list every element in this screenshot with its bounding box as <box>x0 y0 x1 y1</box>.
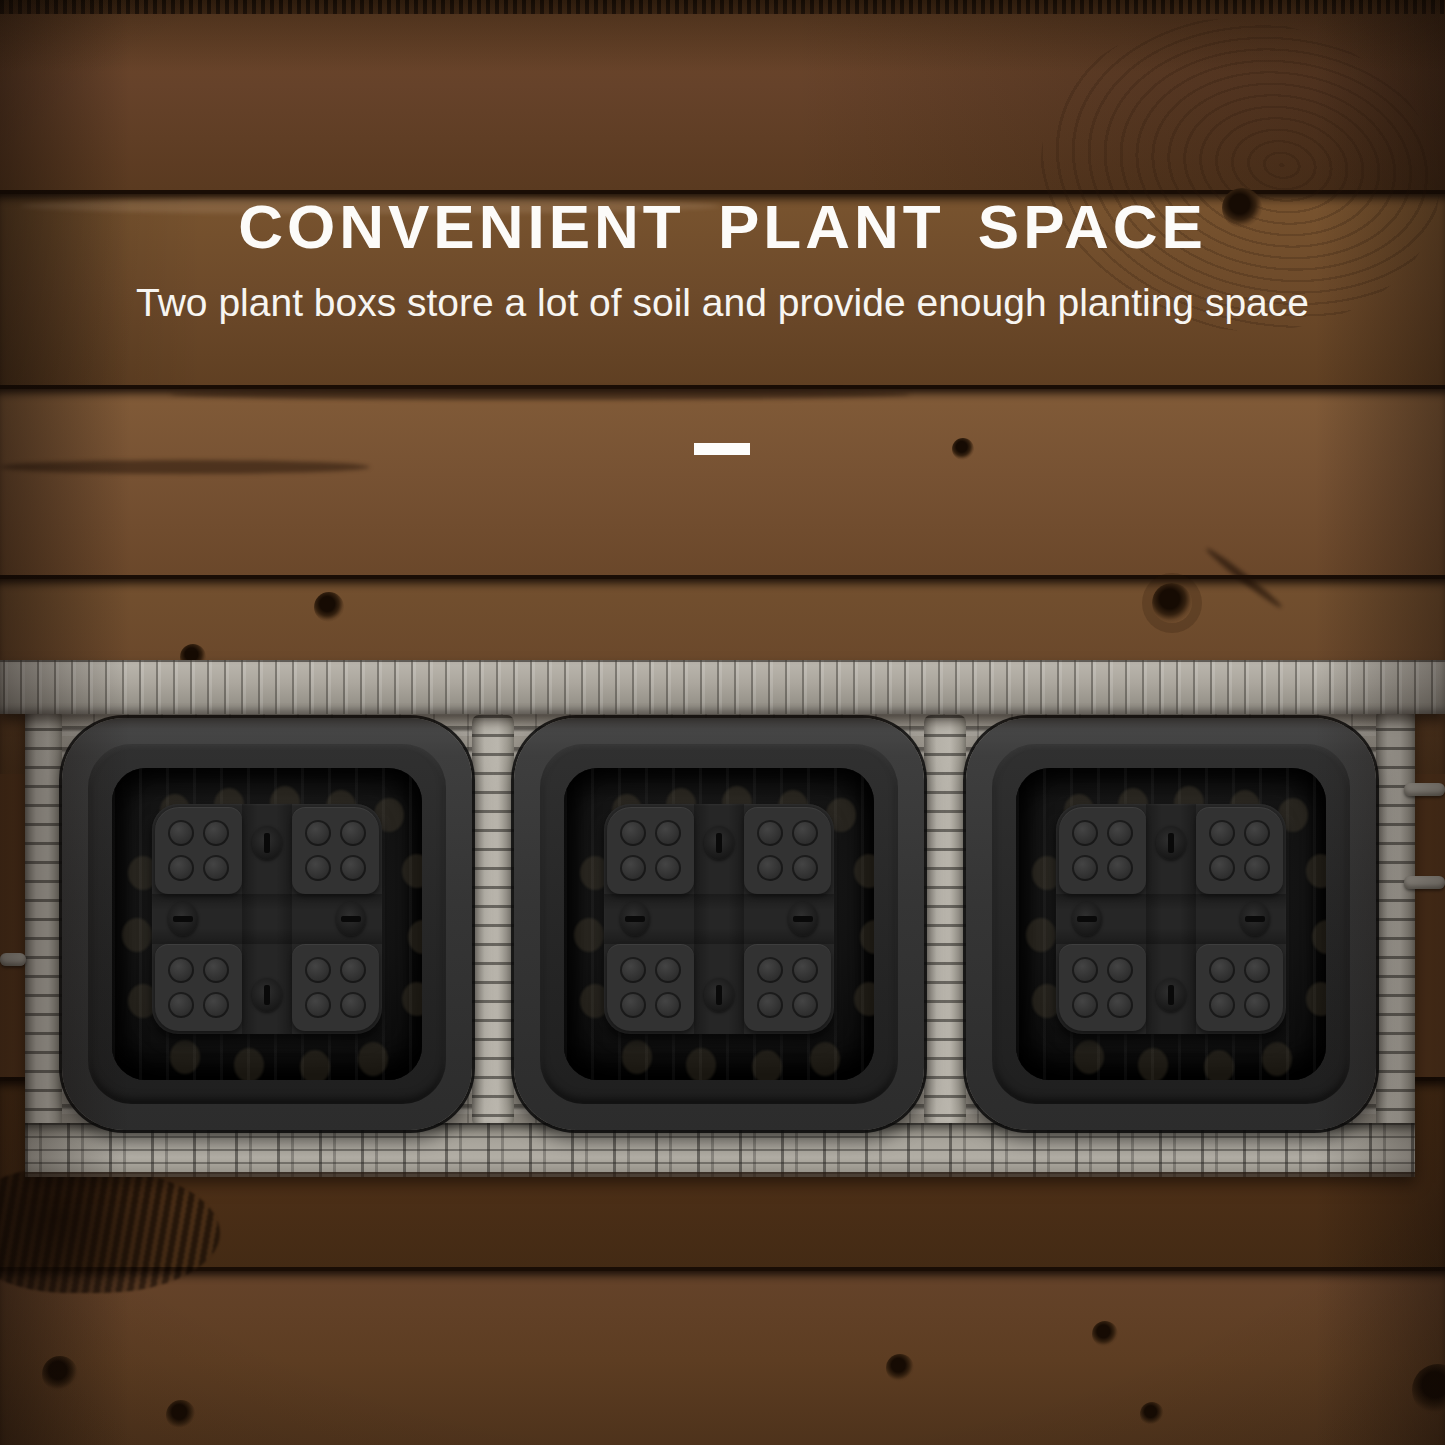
wicker-strand <box>0 953 26 966</box>
drainage-bump <box>655 855 681 881</box>
drainage-bump <box>1244 992 1270 1018</box>
screw <box>1240 902 1270 936</box>
drainage-bump <box>1072 820 1098 846</box>
wicker-strand <box>1404 783 1445 796</box>
screw <box>336 902 366 936</box>
drainage-bump <box>203 992 229 1018</box>
wood-knot <box>952 438 974 460</box>
wood-knot <box>886 1354 914 1382</box>
screw-slot <box>1077 916 1097 922</box>
soil-glimpse <box>1262 1042 1292 1076</box>
drainage-bump <box>620 820 646 846</box>
screw-slot <box>793 916 813 922</box>
divider-dash <box>694 443 750 455</box>
soil-glimpse <box>234 1048 264 1080</box>
drainage-bump <box>340 957 366 983</box>
drainage-plate <box>1056 804 1286 1034</box>
drainage-bump <box>1072 957 1098 983</box>
drainage-bump <box>203 855 229 881</box>
soil-glimpse <box>810 1042 840 1076</box>
screw <box>704 978 734 1012</box>
plate-pad <box>1059 944 1146 1031</box>
screw <box>788 902 818 936</box>
wood-knot <box>1092 1321 1118 1347</box>
screw-slot <box>716 985 722 1005</box>
planter-bottom-weave <box>25 1123 1415 1177</box>
screw <box>620 902 650 936</box>
wood-grain-streak <box>0 460 370 474</box>
screw-slot <box>341 916 361 922</box>
drainage-bump <box>655 957 681 983</box>
plate-pad <box>607 807 694 894</box>
drainage-bump <box>655 992 681 1018</box>
plate-pad <box>1059 807 1146 894</box>
screw <box>1072 902 1102 936</box>
soil-glimpse <box>752 1050 782 1080</box>
drainage-bump <box>203 820 229 846</box>
plate-pad <box>292 807 379 894</box>
drainage-plate <box>152 804 382 1034</box>
drainage-bump <box>1107 855 1133 881</box>
drainage-bump <box>620 957 646 983</box>
wood-knot <box>42 1356 78 1392</box>
wood-knot <box>314 592 344 622</box>
drainage-bump <box>1209 820 1235 846</box>
headline: CONVENIENT PLANT SPACE <box>0 196 1445 258</box>
wood-knot <box>1152 583 1192 623</box>
drainage-bump <box>620 855 646 881</box>
plate-pad <box>155 807 242 894</box>
plant-box-cavity <box>112 768 422 1080</box>
plate-pad <box>1196 944 1283 1031</box>
drainage-bump <box>168 992 194 1018</box>
planter-front-rail <box>0 660 1445 714</box>
wood-plank <box>0 1267 1445 1445</box>
soil-glimpse <box>574 918 604 952</box>
drainage-bump <box>305 992 331 1018</box>
plant-box-cavity <box>564 768 874 1080</box>
drainage-bump <box>305 855 331 881</box>
screw-slot <box>264 985 270 1005</box>
plant-box <box>514 718 924 1130</box>
soil-glimpse <box>300 1050 330 1080</box>
screw <box>168 902 198 936</box>
screw-slot <box>1245 916 1265 922</box>
plate-pad <box>292 944 379 1031</box>
wood-knot <box>1140 1402 1164 1426</box>
drainage-bump <box>1244 957 1270 983</box>
drainage-bump <box>792 957 818 983</box>
soil-glimpse <box>170 1040 200 1074</box>
drainage-bump <box>340 855 366 881</box>
soil-glimpse <box>622 1040 652 1074</box>
screw-slot <box>1168 985 1174 1005</box>
screw-slot <box>173 916 193 922</box>
drainage-bump <box>655 820 681 846</box>
drainage-bump <box>1244 820 1270 846</box>
wood-knot <box>166 1400 196 1430</box>
plate-pad <box>744 807 831 894</box>
drainage-bump <box>168 957 194 983</box>
screw <box>252 826 282 860</box>
drainage-bump <box>757 957 783 983</box>
drainage-bump <box>305 957 331 983</box>
screw-slot <box>1168 833 1174 853</box>
soil-glimpse <box>358 1042 388 1076</box>
planter-left-wall <box>25 709 62 1131</box>
drainage-bump <box>1107 957 1133 983</box>
plate-pad <box>744 944 831 1031</box>
drainage-bump <box>792 820 818 846</box>
plank-top-edge <box>0 0 1445 14</box>
drainage-bump <box>168 855 194 881</box>
subheadline: Two plant boxs store a lot of soil and p… <box>0 281 1445 326</box>
wood-plank <box>0 385 1445 579</box>
soil-glimpse <box>1138 1048 1168 1080</box>
drainage-bump <box>792 855 818 881</box>
soil-glimpse <box>686 1048 716 1080</box>
soil-glimpse <box>1204 1050 1234 1080</box>
drainage-bump <box>1072 855 1098 881</box>
plant-box <box>62 718 472 1130</box>
product-image: CONVENIENT PLANT SPACE Two plant boxs st… <box>0 0 1445 1445</box>
drainage-bump <box>1209 855 1235 881</box>
drainage-bump <box>203 957 229 983</box>
screw-slot <box>625 916 645 922</box>
drainage-bump <box>1107 992 1133 1018</box>
soil-glimpse <box>1026 918 1056 952</box>
plate-pad <box>607 944 694 1031</box>
planter-right-wall <box>1376 709 1415 1131</box>
wicker-strand <box>1404 876 1445 889</box>
screw <box>252 978 282 1012</box>
soil-glimpse <box>122 918 152 952</box>
drainage-bump <box>1072 992 1098 1018</box>
drainage-bump <box>757 820 783 846</box>
plate-pad <box>155 944 242 1031</box>
boxes-row <box>62 718 1376 1130</box>
plant-box-cavity <box>1016 768 1326 1080</box>
drainage-bump <box>757 992 783 1018</box>
drainage-bump <box>620 992 646 1018</box>
planter-body-weave <box>25 705 1415 1177</box>
screw-slot <box>264 833 270 853</box>
plate-pad <box>1196 807 1283 894</box>
screw-slot <box>716 833 722 853</box>
wood-grain-streak <box>170 388 910 400</box>
drainage-bump <box>340 992 366 1018</box>
drainage-bump <box>1209 957 1235 983</box>
drainage-bump <box>168 820 194 846</box>
drainage-bump <box>1209 992 1235 1018</box>
screw <box>704 826 734 860</box>
screw <box>1156 978 1186 1012</box>
drainage-bump <box>305 820 331 846</box>
drainage-bump <box>792 992 818 1018</box>
drainage-bump <box>757 855 783 881</box>
soil-glimpse <box>1074 1040 1104 1074</box>
drainage-bump <box>1244 855 1270 881</box>
drainage-bump <box>1107 820 1133 846</box>
plant-box <box>966 718 1376 1130</box>
drainage-bump <box>340 820 366 846</box>
drainage-plate <box>604 804 834 1034</box>
screw <box>1156 826 1186 860</box>
